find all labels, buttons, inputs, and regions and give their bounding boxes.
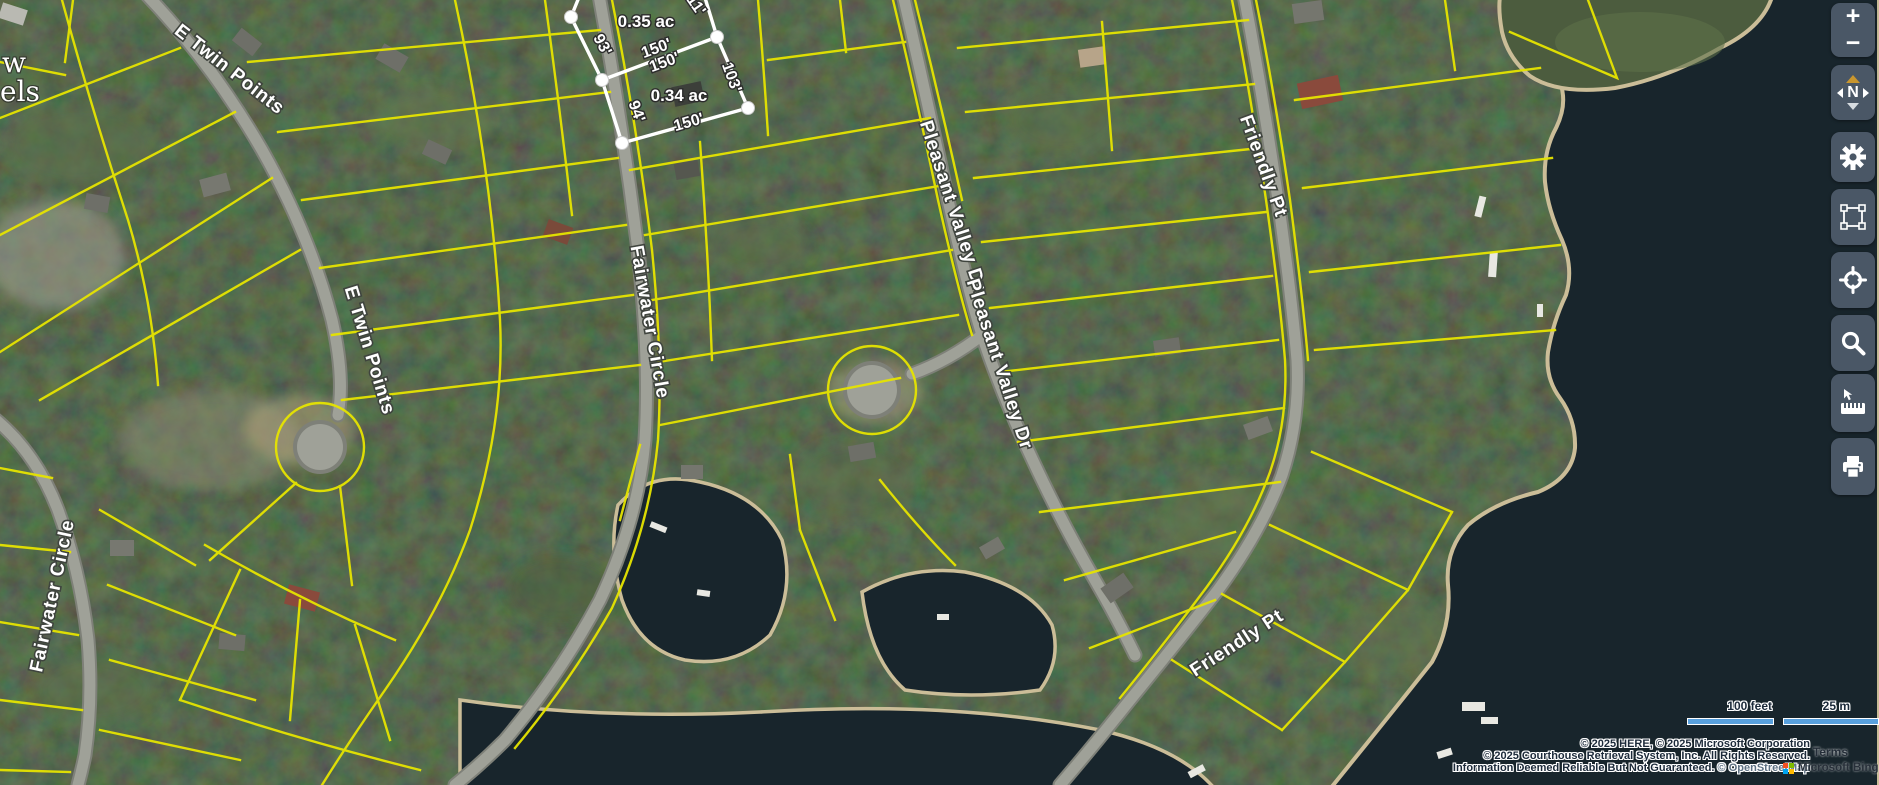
scale-feet-label: 100 feet (1727, 699, 1772, 713)
parcel-dimension-label: 0.34 ac (651, 86, 708, 105)
zoom-control-group: + − (1831, 3, 1875, 57)
print-button[interactable] (1831, 438, 1875, 495)
compass-control[interactable]: N (1831, 65, 1875, 120)
gear-icon (1838, 142, 1868, 172)
search-icon (1838, 328, 1868, 358)
bing-logo: Microsoft Bing (1783, 762, 1879, 774)
tilt-down-icon[interactable] (1847, 103, 1859, 110)
search-button[interactable] (1831, 315, 1875, 371)
attribution-line-2: © 2025 Courthouse Retrieval System, Inc.… (1483, 750, 1810, 762)
select-area-button[interactable] (1831, 189, 1875, 245)
scale-feet-bar (1687, 718, 1774, 725)
rotate-right-icon[interactable] (1863, 88, 1869, 98)
scale-meters-label: 25 m (1823, 699, 1850, 713)
map-viewer: 0.35 ac93'150'150'0.34 ac103'94'150'11' … (0, 0, 1879, 785)
parcel-dimension-label: 0.35 ac (618, 12, 675, 31)
minus-icon: − (1846, 31, 1861, 56)
scale-meters-bar (1783, 718, 1879, 725)
ruler-icon (1836, 386, 1870, 420)
zoom-in-button[interactable]: + (1831, 4, 1875, 30)
locate-button[interactable] (1831, 252, 1875, 308)
crosshair-icon (1838, 265, 1868, 295)
attribution-line-3: Information Deemed Reliable But Not Guar… (1453, 762, 1810, 774)
measure-button[interactable] (1831, 374, 1875, 432)
terms-link[interactable]: Terms (1813, 745, 1848, 759)
plus-icon: + (1846, 4, 1861, 29)
attribution-disclaimer: Information Deemed Reliable But Not Guar… (1453, 762, 1715, 774)
rotate-left-icon[interactable] (1837, 88, 1843, 98)
tilt-up-icon[interactable] (1846, 75, 1860, 83)
settings-button[interactable] (1831, 132, 1875, 182)
printer-icon (1838, 452, 1868, 482)
zoom-out-button[interactable]: − (1831, 31, 1875, 57)
bing-logo-text: Microsoft Bing (1798, 762, 1879, 774)
microsoft-logo-icon (1783, 763, 1794, 774)
attribution-line-1: © 2025 HERE, © 2025 Microsoft Corporatio… (1580, 738, 1810, 750)
north-label: N (1847, 84, 1859, 102)
corner-label-fragment: els (0, 75, 40, 108)
marquee-icon (1838, 202, 1868, 232)
map-canvas[interactable]: 0.35 ac93'150'150'0.34 ac103'94'150'11' … (0, 0, 1879, 785)
